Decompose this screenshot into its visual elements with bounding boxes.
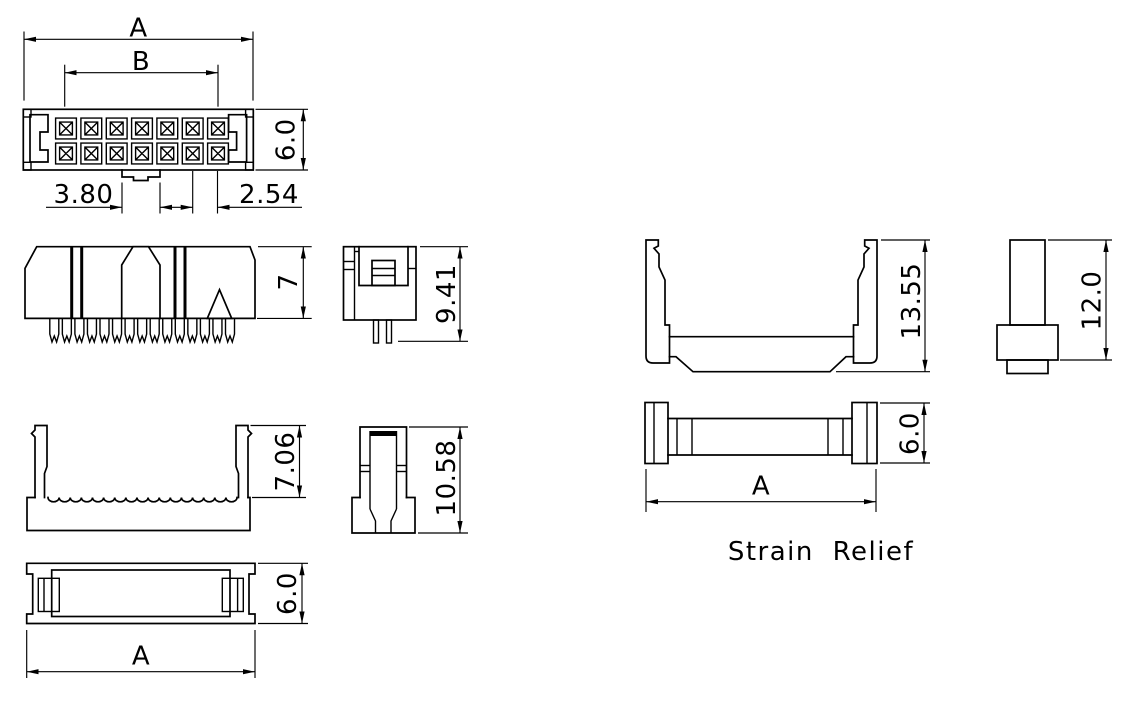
corner-step <box>23 162 31 170</box>
sr-skirt <box>670 357 854 372</box>
dim-cover-side-height: 10.58 <box>432 440 462 517</box>
solder-pin <box>374 320 379 343</box>
right-latch-arm <box>236 426 252 498</box>
left-latch-bracket <box>30 115 48 162</box>
contact-grid <box>56 118 229 164</box>
pin1-triangle-mark <box>207 290 231 319</box>
bottom-cavity <box>52 570 230 617</box>
right-latch-bracket <box>229 115 247 162</box>
corner-step <box>246 162 254 170</box>
latch-arm-side <box>360 427 407 498</box>
cover-side-view: 10.58 <box>352 427 468 533</box>
sr-skirt-side <box>1007 360 1048 374</box>
sr-bar-top-view <box>668 419 852 456</box>
side-view: 9.41 <box>344 247 469 343</box>
cover-base <box>27 498 250 531</box>
drawing-canvas: A B 6.0 3.80 2.54 7 <box>0 0 1136 708</box>
top-view: A B 6.0 3.80 2.54 <box>23 14 308 214</box>
strain-relief-front-view: 13.55 <box>646 240 930 372</box>
dim-top-height: 6.0 <box>272 118 302 161</box>
dim-cover-front-height: 7.06 <box>271 432 301 492</box>
right-latch-window <box>222 578 243 611</box>
dim-sr-front-height: 13.55 <box>897 263 927 340</box>
dim-top-contact-span: B <box>132 47 150 77</box>
channel-funnel <box>370 509 397 533</box>
sr-left-end-block <box>645 403 668 464</box>
connector-technical-drawing: A B 6.0 3.80 2.54 7 <box>0 0 1136 708</box>
dim-top-pitch: 2.54 <box>239 180 299 210</box>
sr-body-side <box>997 325 1058 360</box>
sr-left-arm <box>646 240 670 363</box>
dim-sr-top-width: A <box>752 472 770 502</box>
left-latch-window <box>38 578 59 611</box>
center-key-profile <box>122 247 160 319</box>
left-latch-arm <box>32 426 48 498</box>
dim-top-key-width: 3.80 <box>54 180 114 210</box>
strain-relief-side-view: 12.0 <box>997 240 1112 374</box>
dim-side-height: 9.41 <box>432 264 462 324</box>
bottom-view-body <box>27 563 255 623</box>
dim-front-height: 7 <box>274 273 304 290</box>
cover-front-view: 7.06 <box>27 426 306 531</box>
latch-hook-bar <box>370 431 397 436</box>
dim-bottom-height: 6.0 <box>273 572 303 615</box>
sr-right-arm <box>854 240 878 363</box>
dim-sr-side-height: 12.0 <box>1078 271 1108 331</box>
strain-relief-label: Strain Relief <box>728 537 914 567</box>
polarizing-key-tab <box>122 170 160 181</box>
contact-block <box>372 261 395 286</box>
dim-sr-top-height: 6.0 <box>896 412 926 455</box>
dim-bottom-width: A <box>132 642 150 672</box>
sr-right-end-block <box>852 403 877 464</box>
front-view: 7 <box>25 247 312 342</box>
front-view-body <box>25 247 255 319</box>
solder-pin <box>387 320 392 343</box>
crimp-wavy-edge <box>48 497 237 501</box>
bottom-view: 6.0 A <box>27 563 308 678</box>
dim-top-width: A <box>129 14 147 44</box>
strain-relief-top-view: 6.0 A Strain Relief <box>645 403 930 568</box>
sr-arm-side <box>1010 240 1045 325</box>
cover-base-side <box>352 498 415 534</box>
idc-contact-pins <box>50 319 235 342</box>
cavity-outline <box>359 247 408 286</box>
